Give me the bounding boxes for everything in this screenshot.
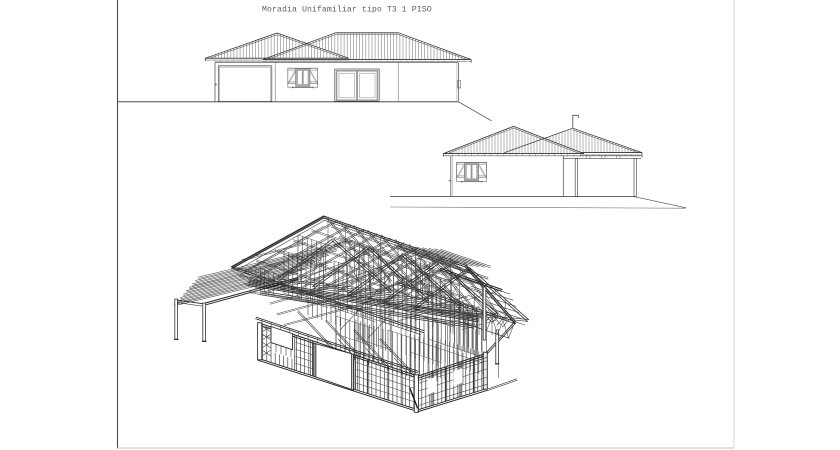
svg-text:Moradia Unifamiliar tipo T3 1: Moradia Unifamiliar tipo T3 1 PISO [262, 5, 432, 15]
